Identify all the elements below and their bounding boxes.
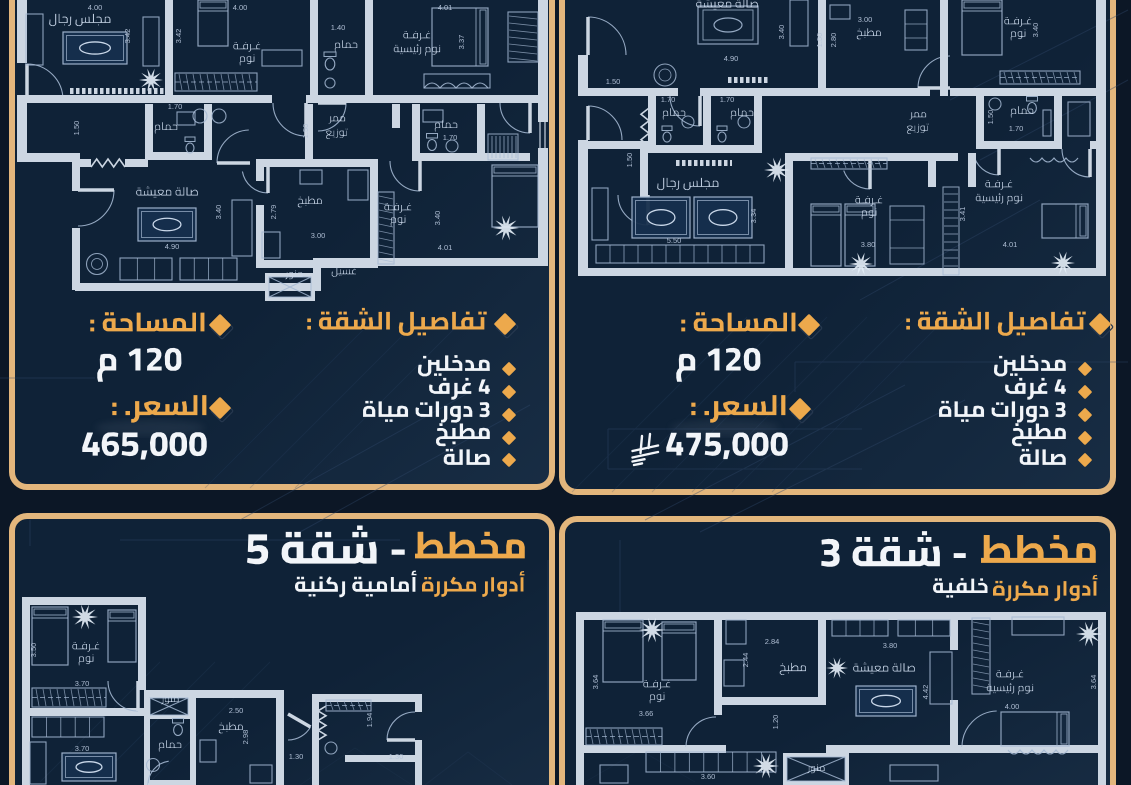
svg-text:1.50: 1.50	[815, 33, 824, 48]
svg-text:4.01: 4.01	[438, 243, 453, 252]
svg-text:3.40: 3.40	[1031, 23, 1040, 38]
svg-text:4.01: 4.01	[438, 3, 453, 12]
svg-text:4.00: 4.00	[1005, 702, 1020, 711]
svg-text:3.60: 3.60	[701, 772, 716, 781]
svg-text:1.20: 1.20	[771, 715, 780, 730]
svg-text:1.30: 1.30	[289, 752, 304, 761]
svg-text:3.80: 3.80	[883, 641, 898, 650]
svg-text:1.40: 1.40	[331, 23, 346, 32]
svg-text:1.70: 1.70	[443, 133, 458, 142]
svg-text:3.64: 3.64	[1089, 675, 1098, 690]
svg-text:2.80: 2.80	[829, 33, 838, 48]
svg-text:3.40: 3.40	[214, 205, 223, 220]
svg-text:3.66: 3.66	[639, 709, 654, 718]
svg-text:4.00: 4.00	[233, 3, 248, 12]
svg-text:5.50: 5.50	[667, 236, 682, 245]
svg-text:2.44: 2.44	[741, 653, 750, 668]
svg-text:1.30: 1.30	[389, 752, 404, 761]
svg-text:1.50: 1.50	[72, 121, 81, 136]
svg-text:3.80: 3.80	[861, 240, 876, 249]
svg-text:3.50: 3.50	[29, 643, 38, 658]
svg-text:1.50: 1.50	[301, 124, 310, 139]
svg-text:4.00: 4.00	[88, 3, 103, 12]
svg-text:2.79: 2.79	[269, 205, 278, 220]
svg-text:3.70: 3.70	[75, 744, 90, 753]
svg-text:3.42: 3.42	[123, 29, 132, 44]
svg-text:3.64: 3.64	[591, 675, 600, 690]
svg-text:1.94: 1.94	[365, 713, 374, 728]
svg-text:1.70: 1.70	[1009, 124, 1024, 133]
svg-text:3.42: 3.42	[174, 29, 183, 44]
svg-text:3.37: 3.37	[457, 35, 466, 50]
svg-text:3.41: 3.41	[958, 207, 967, 222]
svg-text:2.98: 2.98	[241, 730, 250, 745]
svg-text:4.90: 4.90	[165, 242, 180, 251]
svg-text:1.70: 1.70	[661, 95, 676, 104]
svg-text:1.50: 1.50	[625, 153, 634, 168]
svg-text:2.84: 2.84	[765, 637, 780, 646]
svg-text:3.40: 3.40	[433, 211, 442, 226]
svg-text:3.00: 3.00	[311, 231, 326, 240]
svg-text:4.42: 4.42	[921, 685, 930, 700]
svg-text:3.40: 3.40	[777, 25, 786, 40]
svg-text:1.50: 1.50	[986, 110, 995, 125]
svg-text:4.90: 4.90	[724, 54, 739, 63]
svg-text:1.70: 1.70	[168, 102, 183, 111]
svg-text:3.34: 3.34	[749, 209, 758, 224]
svg-text:3.00: 3.00	[858, 15, 873, 24]
svg-text:3.70: 3.70	[75, 679, 90, 688]
svg-text:1.70: 1.70	[720, 95, 735, 104]
svg-text:1.50: 1.50	[606, 77, 621, 86]
svg-text:4.01: 4.01	[1003, 240, 1018, 249]
svg-text:2.50: 2.50	[229, 706, 244, 715]
